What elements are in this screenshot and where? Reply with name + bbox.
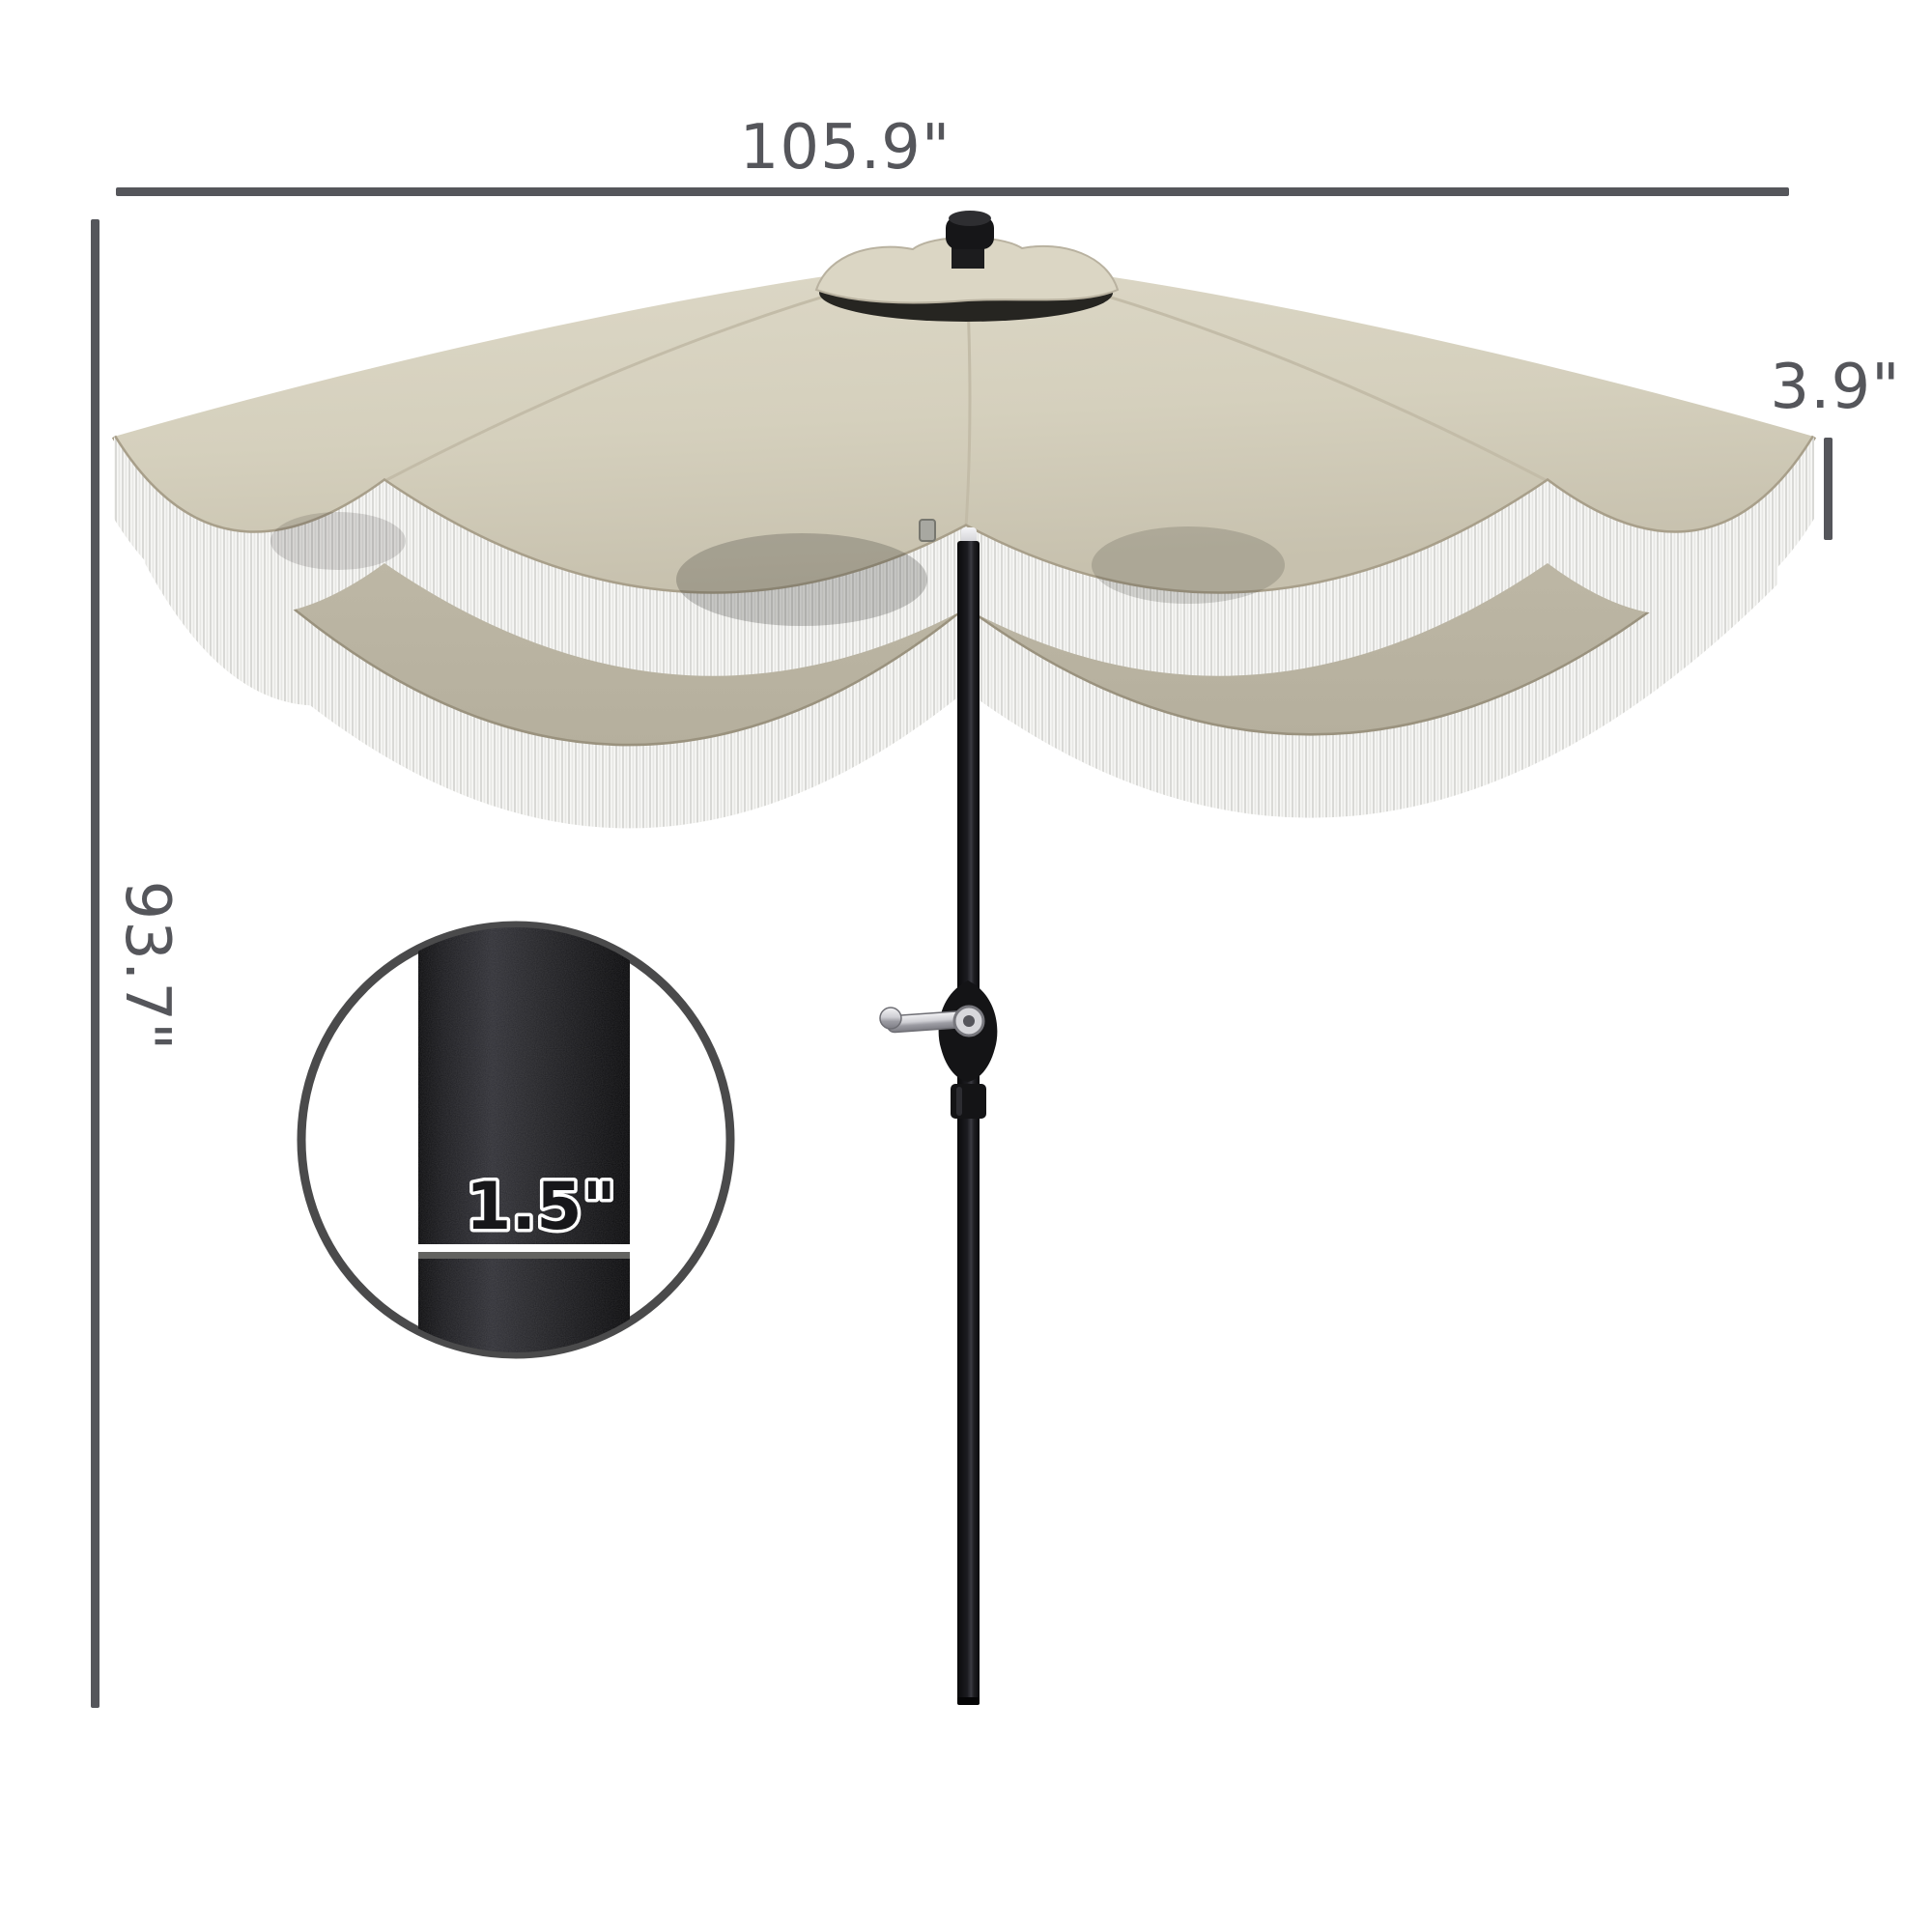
pole-diameter-inset: 1.5" <box>301 920 730 1362</box>
crank-knob <box>880 1008 901 1029</box>
pole-joint-highlight <box>956 1087 962 1116</box>
width-dimension-label: 105.9" <box>740 112 952 184</box>
width-dimension-line <box>116 187 1789 196</box>
pole-bottom-cap <box>957 1697 980 1705</box>
fringe-shadow-right <box>1092 526 1285 604</box>
umbrella-illustration <box>114 211 1814 1705</box>
diagram-canvas: 1.5" <box>0 0 1932 1932</box>
valance-dimension-line <box>1824 438 1833 540</box>
product-dimension-diagram: 1.5" 105.9" 93.7" 3.9" <box>0 0 1932 1932</box>
inset-pole-texture <box>418 920 630 1362</box>
fringe-shadow-left <box>676 533 927 626</box>
inset-measure-line-white <box>418 1244 630 1252</box>
hub-clip <box>920 520 935 541</box>
height-dimension-label: 93.7" <box>111 881 183 1052</box>
finial-top <box>949 211 991 226</box>
fringe-shadow-far-left <box>270 512 406 570</box>
inset-measure-line-gray <box>418 1252 630 1259</box>
pole-joint-collar <box>951 1084 986 1119</box>
pole-diameter-label: 1.5" <box>466 1169 616 1245</box>
crank-nut-center <box>963 1015 975 1027</box>
valance-dimension-label: 3.9" <box>1770 352 1900 423</box>
height-dimension-line <box>91 219 99 1708</box>
umbrella-pole <box>957 541 980 1705</box>
